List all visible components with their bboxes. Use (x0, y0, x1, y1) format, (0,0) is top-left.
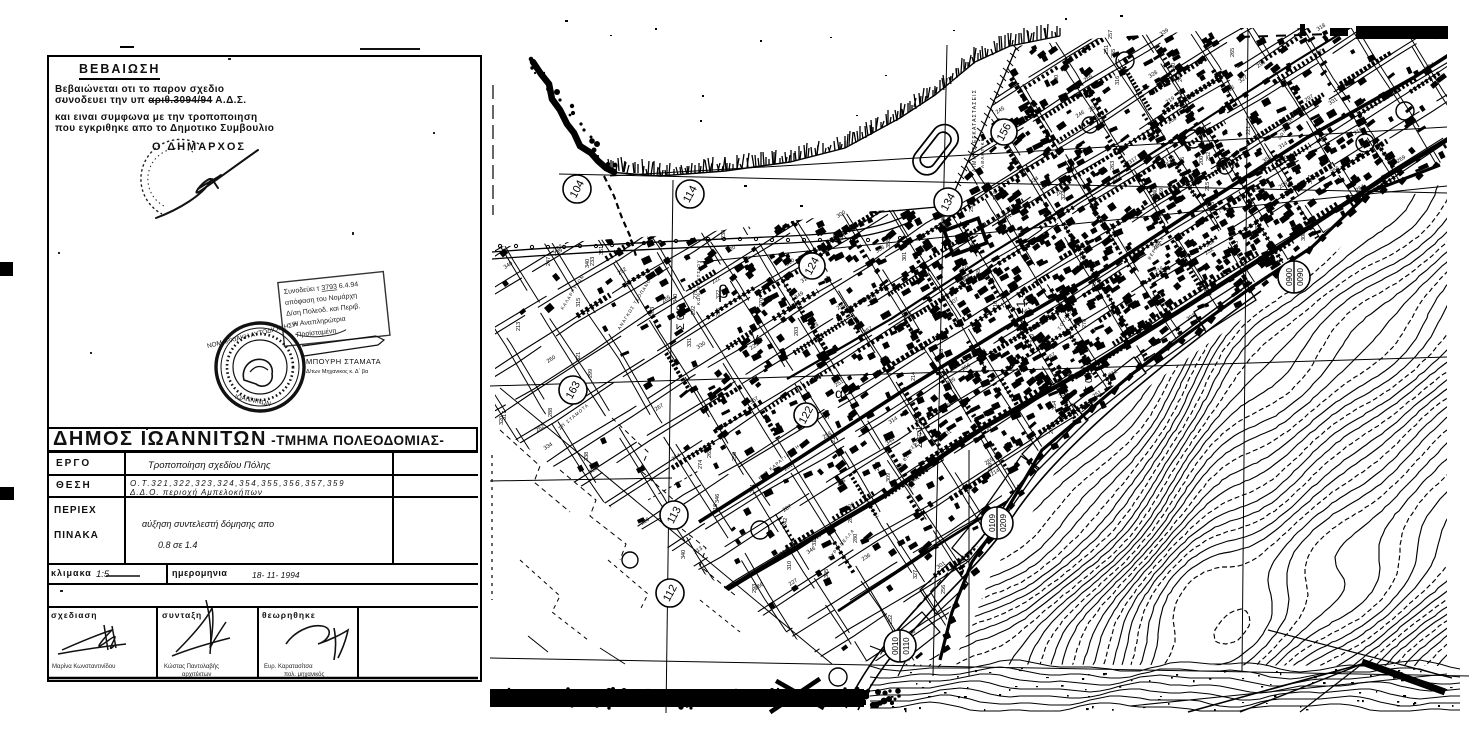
svg-text:325: 325 (825, 410, 831, 419)
svg-text:331: 331 (1328, 97, 1339, 107)
svg-text:218: 218 (993, 191, 999, 200)
svg-text:354: 354 (1052, 401, 1058, 410)
svg-text:0109: 0109 (988, 514, 997, 532)
svg-text:280: 280 (853, 534, 859, 543)
svg-text:215: 215 (1205, 182, 1211, 191)
svg-text:242: 242 (783, 518, 789, 527)
svg-text:252: 252 (1206, 152, 1212, 161)
svg-text:265: 265 (1230, 48, 1236, 57)
svg-text:213: 213 (693, 546, 704, 556)
svg-text:245: 245 (995, 106, 1006, 116)
svg-text:256: 256 (732, 452, 738, 461)
svg-text:ΣΔ=1.4: ΣΔ=1.4 (1014, 291, 1028, 330)
svg-text:ΑΘΛΗΤΙΚΕΣ: ΑΘΛΗΤΙΚΕΣ (980, 134, 985, 168)
svg-text:0090: 0090 (1296, 268, 1305, 286)
svg-text:213: 213 (516, 322, 522, 331)
svg-text:256: 256 (716, 308, 722, 317)
svg-text:233: 233 (590, 257, 596, 266)
svg-text:238: 238 (721, 230, 727, 239)
svg-text:288: 288 (548, 408, 554, 417)
svg-text:327: 327 (913, 570, 919, 579)
svg-text:246: 246 (1075, 110, 1086, 120)
svg-text:346: 346 (715, 494, 721, 503)
svg-text:258: 258 (1070, 161, 1076, 170)
svg-text:300: 300 (1301, 232, 1307, 241)
svg-text:349: 349 (988, 463, 994, 472)
svg-text:206: 206 (1080, 251, 1086, 260)
svg-text:274: 274 (1319, 133, 1325, 142)
svg-text:247: 247 (546, 257, 552, 266)
svg-text:247: 247 (1178, 73, 1184, 82)
svg-text:270: 270 (759, 298, 765, 307)
svg-text:255: 255 (1111, 49, 1117, 58)
svg-text:330: 330 (696, 341, 707, 351)
svg-text:ΣΔ=1.4: ΣΔ=1.4 (914, 419, 924, 448)
svg-text:315: 315 (576, 298, 582, 307)
svg-text:214: 214 (911, 372, 917, 381)
svg-text:340: 340 (673, 294, 679, 303)
svg-text:γ: γ (752, 330, 759, 345)
svg-text:ΚΩΝ ΜΕΡΤΣΙΟΥ: ΚΩΝ ΜΕΡΤΣΙΟΥ (696, 259, 701, 305)
svg-text:265: 265 (707, 449, 713, 458)
svg-text:274: 274 (698, 460, 704, 469)
svg-text:351: 351 (599, 246, 605, 255)
svg-text:α: α (835, 385, 843, 401)
svg-text:292: 292 (691, 306, 697, 315)
svg-text:201: 201 (942, 429, 953, 439)
svg-text:337: 337 (1255, 220, 1261, 229)
svg-text:299: 299 (588, 369, 594, 378)
svg-text:317: 317 (502, 411, 508, 420)
svg-text:340: 340 (681, 550, 687, 559)
svg-text:301: 301 (902, 252, 908, 261)
svg-text:328: 328 (1148, 70, 1159, 80)
svg-text:221: 221 (1246, 126, 1252, 135)
svg-text:252: 252 (617, 267, 628, 277)
svg-text:267: 267 (1046, 352, 1057, 362)
svg-text:330: 330 (1054, 75, 1060, 84)
svg-text:338: 338 (584, 452, 590, 461)
svg-text:228: 228 (939, 349, 945, 358)
svg-text:352: 352 (987, 424, 993, 433)
svg-text:220: 220 (875, 462, 881, 471)
svg-text:329: 329 (845, 502, 856, 512)
svg-text:309: 309 (886, 473, 892, 482)
svg-text:240: 240 (1171, 63, 1177, 72)
svg-text:355: 355 (976, 269, 982, 278)
svg-text:316: 316 (1115, 76, 1121, 85)
svg-text:265: 265 (1180, 157, 1186, 166)
svg-text:274: 274 (1040, 338, 1046, 347)
svg-text:358: 358 (886, 239, 892, 248)
svg-text:278: 278 (1082, 319, 1088, 328)
svg-text:243: 243 (1234, 241, 1240, 250)
svg-text:357: 357 (1308, 175, 1314, 184)
svg-text:253: 253 (969, 203, 975, 212)
svg-text:349: 349 (1030, 334, 1036, 343)
svg-text:204: 204 (848, 514, 854, 523)
svg-text:256: 256 (941, 585, 947, 594)
svg-text:283: 283 (650, 307, 656, 316)
svg-text:303: 303 (1210, 202, 1216, 211)
svg-text:236: 236 (861, 553, 872, 563)
svg-text:301: 301 (750, 484, 756, 493)
svg-text:260: 260 (546, 355, 557, 365)
svg-text:335: 335 (941, 216, 947, 225)
svg-text:310: 310 (787, 561, 793, 570)
svg-text:340: 340 (503, 261, 514, 271)
svg-text:219: 219 (1165, 96, 1176, 106)
svg-text:358: 358 (1204, 285, 1210, 294)
svg-text:0900: 0900 (1285, 268, 1294, 286)
svg-text:288: 288 (1101, 117, 1107, 126)
svg-text:317: 317 (1128, 156, 1139, 166)
svg-text:β: β (718, 282, 728, 302)
svg-text:0110: 0110 (902, 637, 911, 655)
svg-text:200: 200 (1199, 156, 1205, 165)
svg-text:316: 316 (713, 504, 719, 513)
svg-text:331: 331 (687, 338, 693, 347)
svg-text:203: 203 (794, 327, 800, 336)
svg-text:267: 267 (654, 403, 665, 413)
svg-text:251: 251 (1104, 45, 1110, 54)
svg-text:359: 359 (1159, 188, 1165, 197)
svg-text:252: 252 (888, 615, 894, 624)
svg-text:334: 334 (543, 442, 554, 452)
svg-text:346: 346 (806, 546, 817, 556)
svg-text:0010: 0010 (891, 637, 900, 655)
svg-text:355: 355 (1262, 155, 1273, 165)
svg-text:357: 357 (863, 326, 874, 336)
svg-text:305: 305 (824, 569, 830, 578)
svg-text:316: 316 (699, 404, 710, 414)
svg-text:Σ 0.8: Σ 0.8 (675, 305, 687, 330)
svg-text:210: 210 (993, 301, 999, 310)
svg-text:ΛΙΜΝΗΣ ΕΓΚΑΤΑΣΤΑΣΕΙΣ: ΛΙΜΝΗΣ ΕΓΚΑΤΑΣΤΑΣΕΙΣ (972, 89, 978, 172)
svg-text:267: 267 (1092, 279, 1098, 288)
svg-text:263: 263 (1110, 161, 1116, 170)
svg-text:257: 257 (1108, 30, 1114, 39)
svg-text:339: 339 (1159, 28, 1170, 38)
svg-text:321: 321 (576, 352, 582, 361)
svg-text:0209: 0209 (999, 514, 1008, 532)
svg-text:280: 280 (1054, 147, 1065, 157)
